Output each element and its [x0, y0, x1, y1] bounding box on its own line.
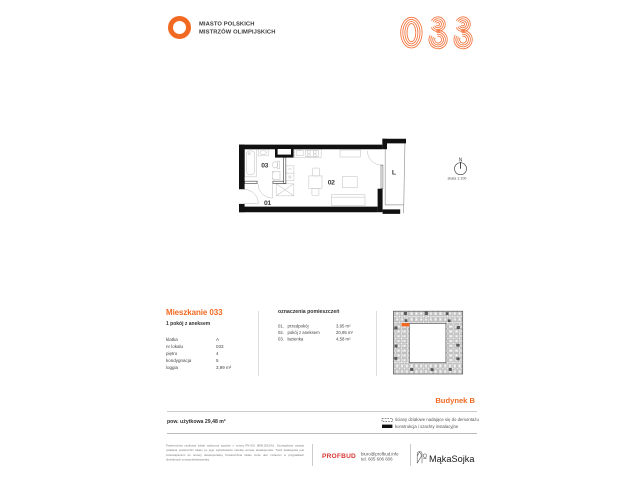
- svg-text:02: 02: [328, 180, 335, 187]
- svg-text:L: L: [392, 169, 396, 176]
- svg-text:01: 01: [264, 200, 271, 207]
- svg-text:03: 03: [261, 163, 268, 170]
